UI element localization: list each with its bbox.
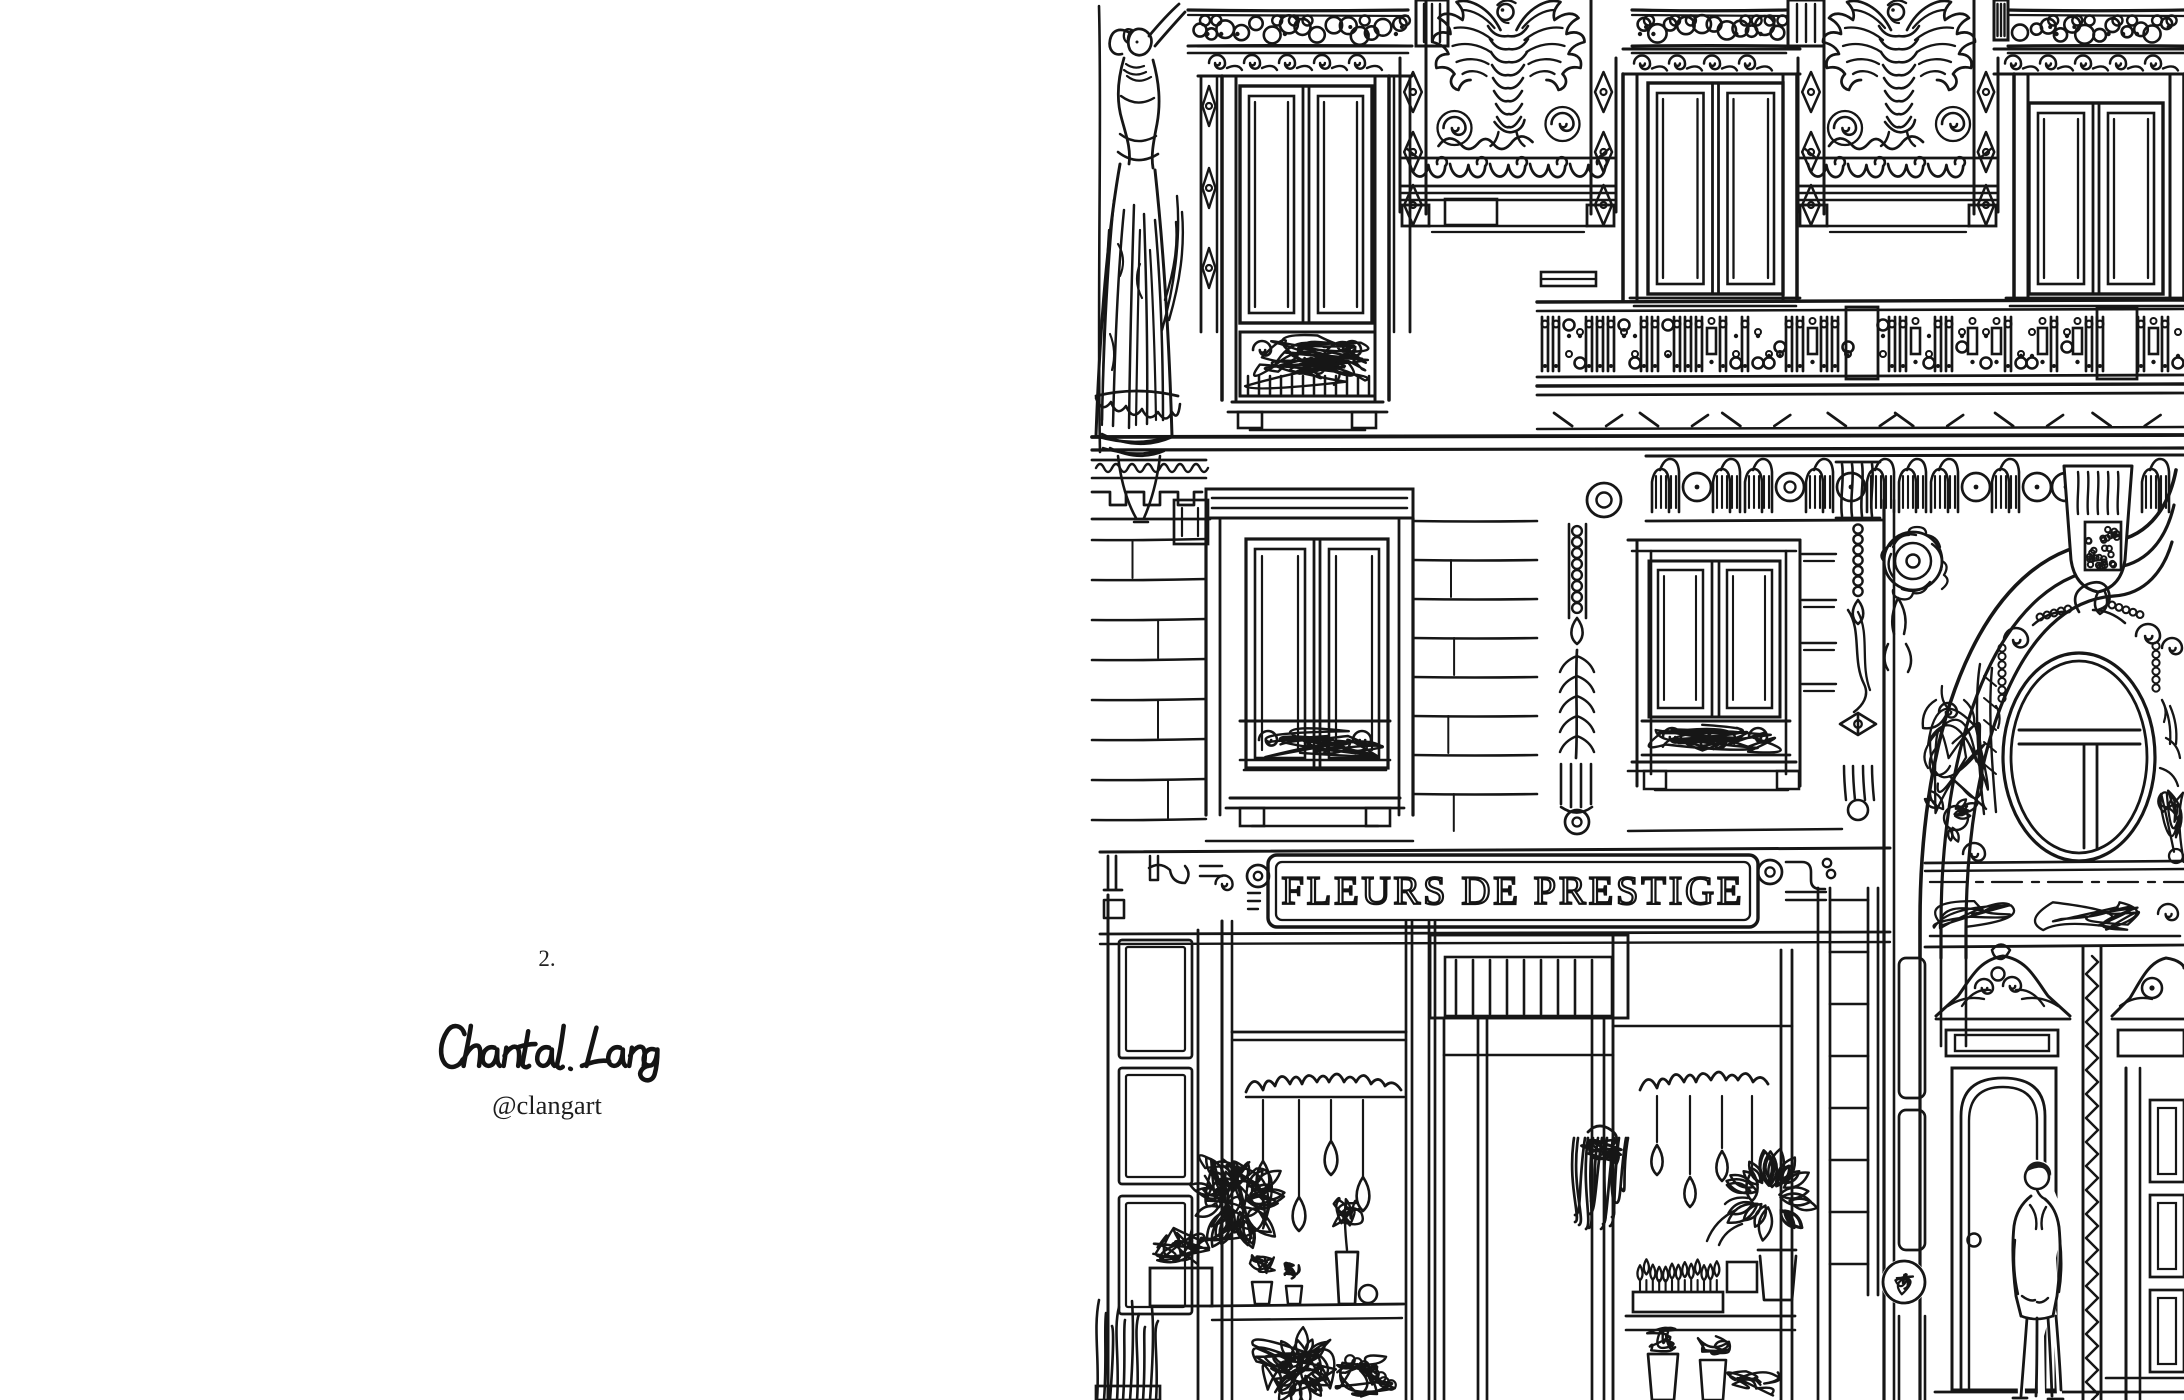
svg-text:2.: 2. — [538, 946, 555, 971]
svg-text:FLEURS DE PRESTIGE: FLEURS DE PRESTIGE — [1282, 868, 1745, 913]
svg-text:@clangart: @clangart — [492, 1090, 602, 1120]
